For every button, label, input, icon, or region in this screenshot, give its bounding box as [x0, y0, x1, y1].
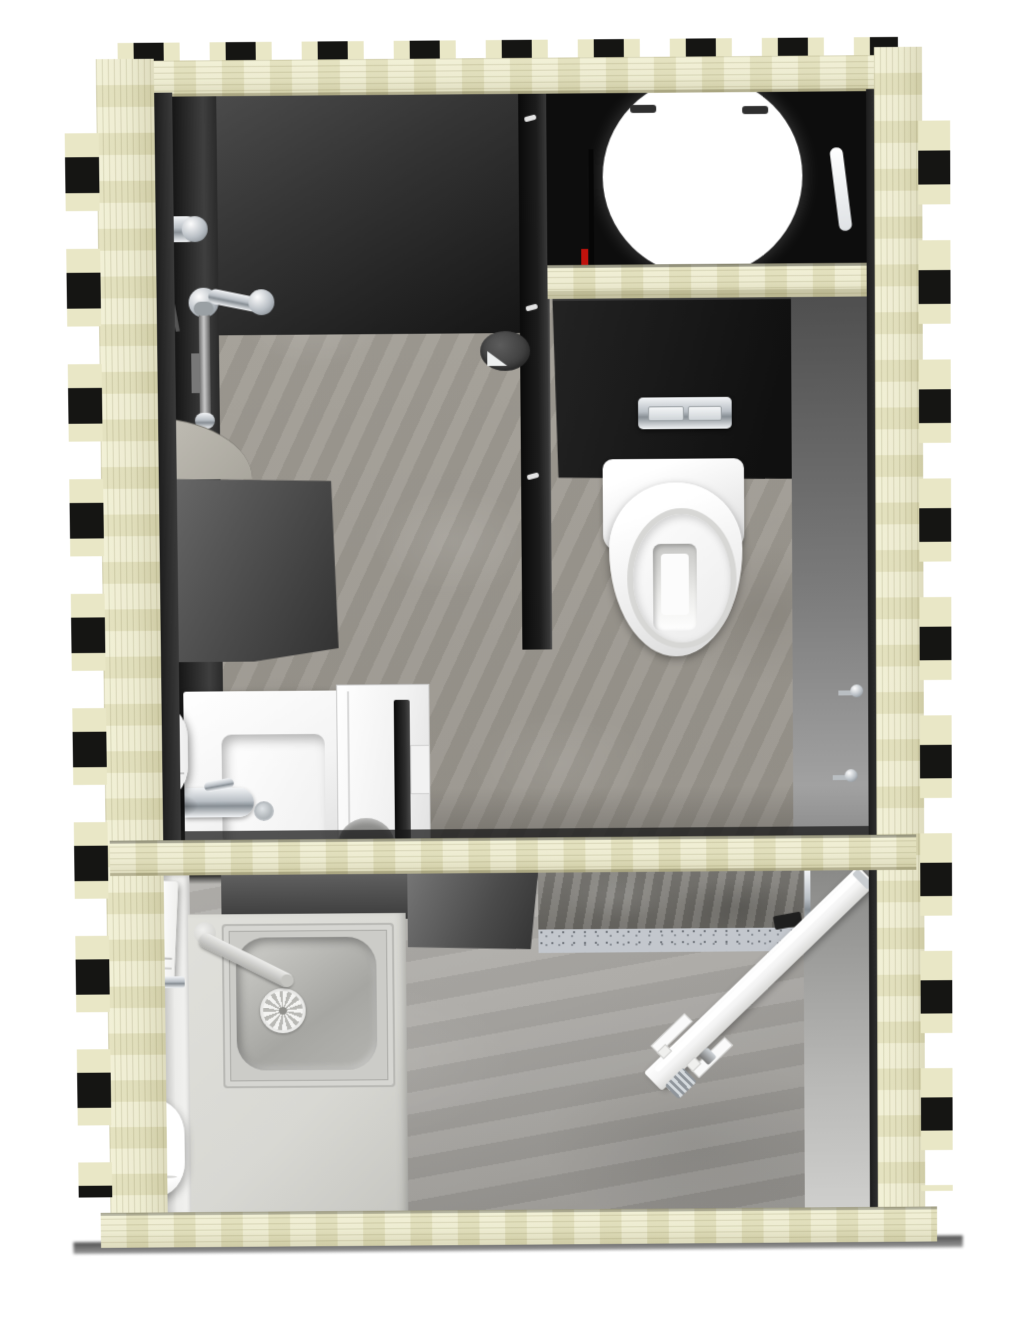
slide-bar-knob-top — [194, 302, 214, 316]
drain-highlight — [487, 351, 507, 366]
toilet-channel-inner — [661, 554, 689, 615]
flush-button-large — [648, 406, 684, 421]
frame-middle-joist — [110, 834, 917, 876]
tank-bracket-left — [630, 105, 656, 113]
tank-room — [546, 91, 869, 267]
interior-bottom — [160, 870, 872, 1214]
flush-plate — [638, 397, 732, 429]
frame-bottom-beam — [101, 1206, 937, 1247]
frame-right-teeth — [918, 120, 953, 1191]
right-wall-face — [791, 296, 871, 835]
dark-pipe — [588, 149, 594, 267]
wall-stub — [407, 873, 538, 950]
flush-button-small — [688, 406, 722, 421]
shower-slide-bar — [199, 310, 211, 421]
door-leaf-line — [347, 691, 350, 838]
coat-hook-icon — [850, 684, 863, 697]
coat-hook-icon — [845, 769, 858, 782]
toilet-flush-channel — [653, 544, 697, 631]
tank-bracket-right — [742, 106, 768, 114]
sink-drain-center — [279, 1007, 287, 1015]
tank-hatch — [829, 147, 852, 232]
tank-joist — [547, 263, 868, 299]
water-tank — [602, 91, 803, 267]
frame-top-beam — [100, 55, 914, 97]
threshold-strip — [538, 927, 803, 953]
slide-bar-bracket — [191, 353, 199, 393]
interior-door-frame — [410, 745, 430, 794]
sanitary-unit — [0, 0, 1010, 1311]
shower-union-ball — [182, 216, 208, 242]
sink-drain-icon — [260, 988, 306, 1033]
floor-drain — [480, 331, 530, 371]
concrete-wall-band — [538, 871, 804, 934]
shower-handpiece — [248, 289, 274, 315]
interior-door-seal — [394, 700, 411, 840]
render-canvas — [0, 0, 1010, 1326]
door-lock-knurl — [665, 1068, 697, 1100]
basin-drain — [254, 801, 274, 821]
door-handle-flange-outer — [651, 1013, 693, 1054]
